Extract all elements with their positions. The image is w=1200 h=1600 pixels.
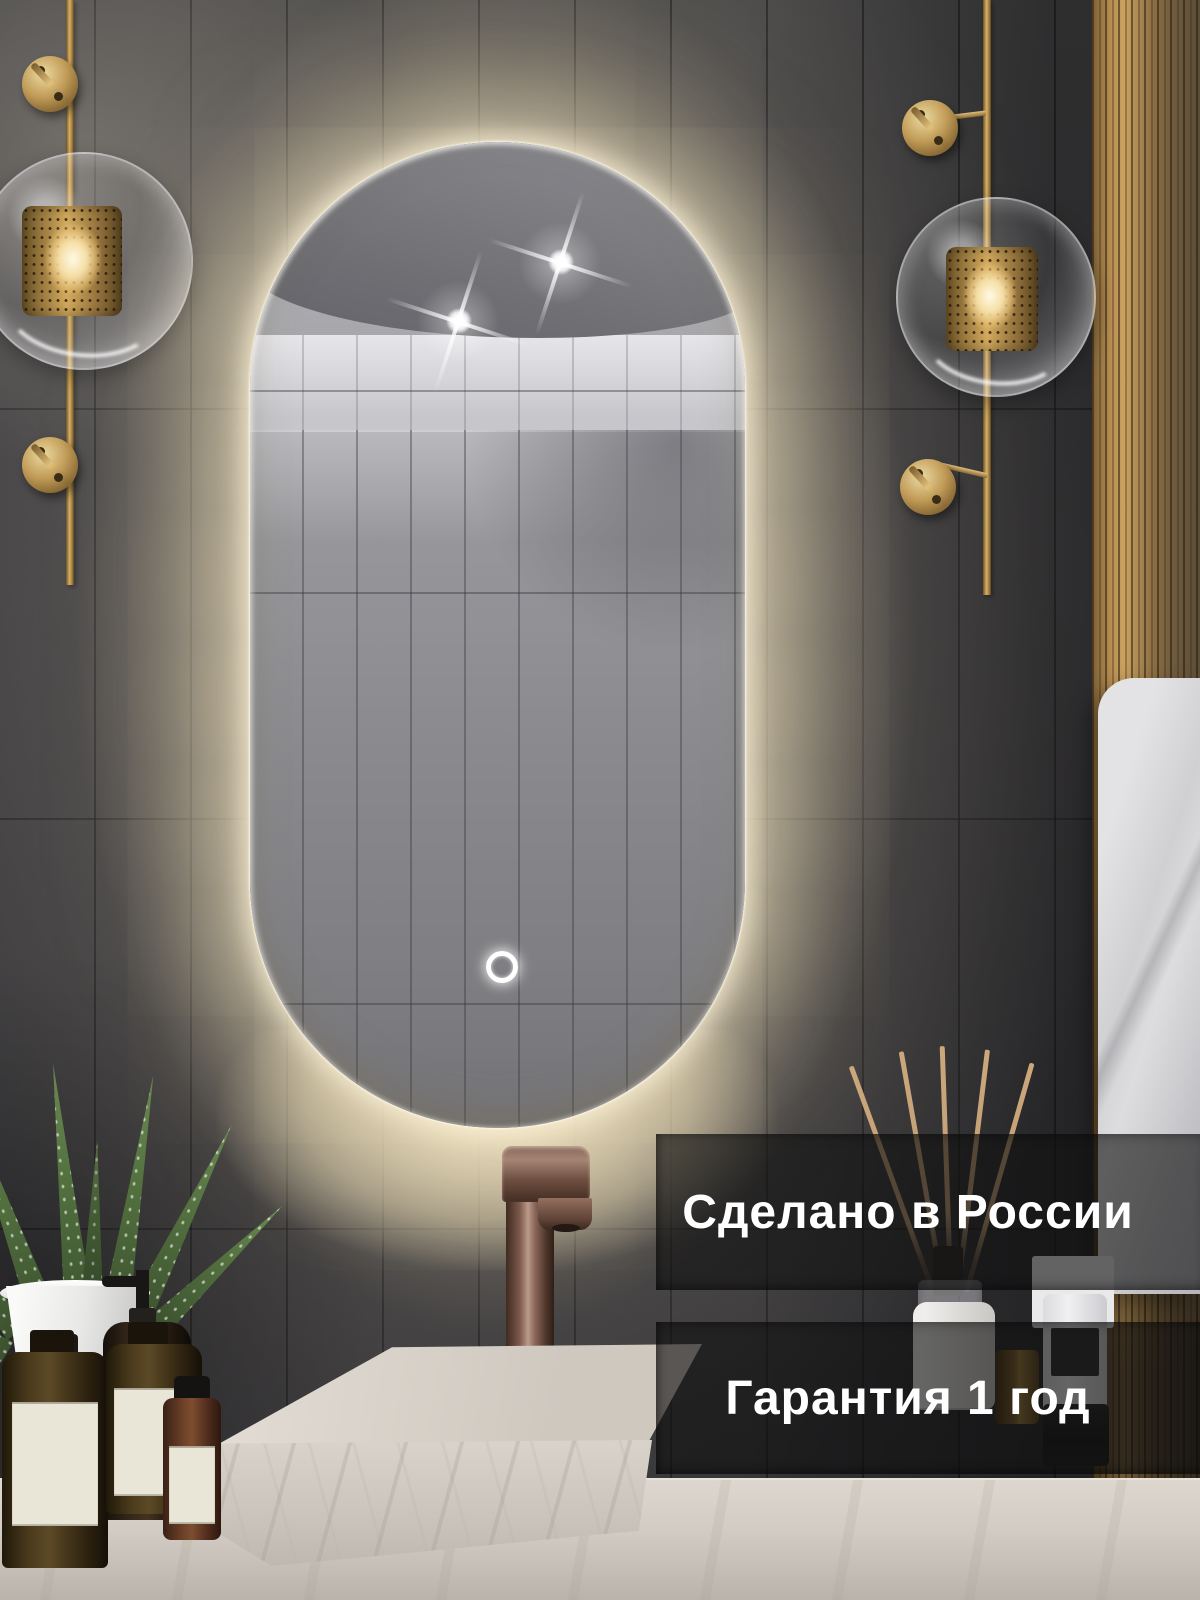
badge-warranty: Гарантия 1 год	[656, 1322, 1200, 1474]
plate-bar	[30, 443, 70, 486]
sconce-right-wall-plate-bottom	[900, 459, 956, 515]
led-backlit-capsule-mirror	[250, 142, 745, 1128]
plate-bar	[30, 62, 70, 105]
plate-bar	[910, 106, 950, 149]
bottle-label	[12, 1402, 98, 1526]
badge-made-in-russia: Сделано в России	[656, 1134, 1200, 1290]
sconce-left-bulb-glow	[45, 224, 101, 294]
bathroom-product-photo: Сделано в России Гарантия 1 год	[0, 0, 1200, 1600]
sconce-left-mesh-shade	[22, 206, 122, 316]
plate-bar	[908, 465, 948, 508]
badge-warranty-label: Гарантия 1 год	[725, 1371, 1090, 1426]
sconce-right-bulb-glow	[964, 263, 1016, 329]
sconce-left-wall-plate-top	[22, 56, 78, 112]
sconce-right-wall-plate-top	[902, 100, 958, 156]
sconce-left-wall-plate-bottom	[22, 437, 78, 493]
bottle-label	[169, 1446, 215, 1524]
faucet-head	[502, 1146, 590, 1202]
sconce-right-glass-globe	[896, 197, 1096, 397]
mirror-inner-rim	[250, 142, 745, 1128]
soap-pump-nozzle	[102, 1276, 140, 1287]
badge-made-in-russia-label: Сделано в России	[682, 1185, 1133, 1240]
faucet-mouth	[552, 1224, 580, 1232]
